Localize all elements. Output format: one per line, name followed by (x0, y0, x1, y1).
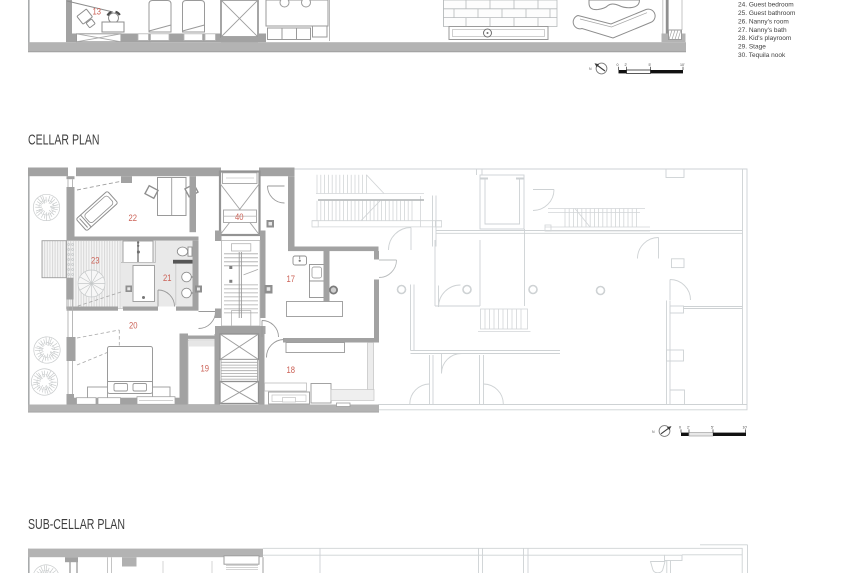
svg-text:17: 17 (287, 274, 296, 284)
svg-text:23: 23 (91, 256, 100, 266)
svg-text:2': 2' (687, 426, 690, 430)
svg-text:N: N (652, 430, 655, 434)
svg-text:22: 22 (129, 213, 138, 223)
svg-text:26. Nanny's room: 26. Nanny's room (738, 18, 789, 25)
svg-text:21: 21 (163, 273, 172, 283)
svg-text:10': 10' (680, 63, 685, 67)
svg-text:24. Guest bedroom: 24. Guest bedroom (738, 2, 794, 9)
svg-text:28. Kid's playroom: 28. Kid's playroom (738, 35, 791, 42)
svg-text:19: 19 (201, 364, 210, 374)
svg-text:5': 5' (711, 426, 714, 430)
svg-text:25. Guest bathroom: 25. Guest bathroom (738, 10, 795, 17)
svg-text:0: 0 (617, 63, 619, 67)
svg-text:10': 10' (743, 426, 748, 430)
svg-text:30. Tequila nook: 30. Tequila nook (738, 52, 786, 59)
svg-text:N: N (589, 67, 592, 71)
svg-text:29. Stage: 29. Stage (738, 44, 766, 51)
svg-text:27. Nanny's bath: 27. Nanny's bath (738, 27, 787, 34)
svg-text:18: 18 (287, 365, 296, 375)
svg-text:40: 40 (235, 212, 244, 222)
svg-text:2': 2' (625, 63, 628, 67)
svg-text:CELLAR PLAN: CELLAR PLAN (28, 132, 100, 149)
svg-text:20: 20 (129, 321, 138, 331)
svg-text:0: 0 (679, 426, 681, 430)
svg-text:5': 5' (649, 63, 652, 67)
svg-text:SUB-CELLAR PLAN: SUB-CELLAR PLAN (28, 516, 125, 533)
svg-text:13: 13 (93, 6, 102, 16)
